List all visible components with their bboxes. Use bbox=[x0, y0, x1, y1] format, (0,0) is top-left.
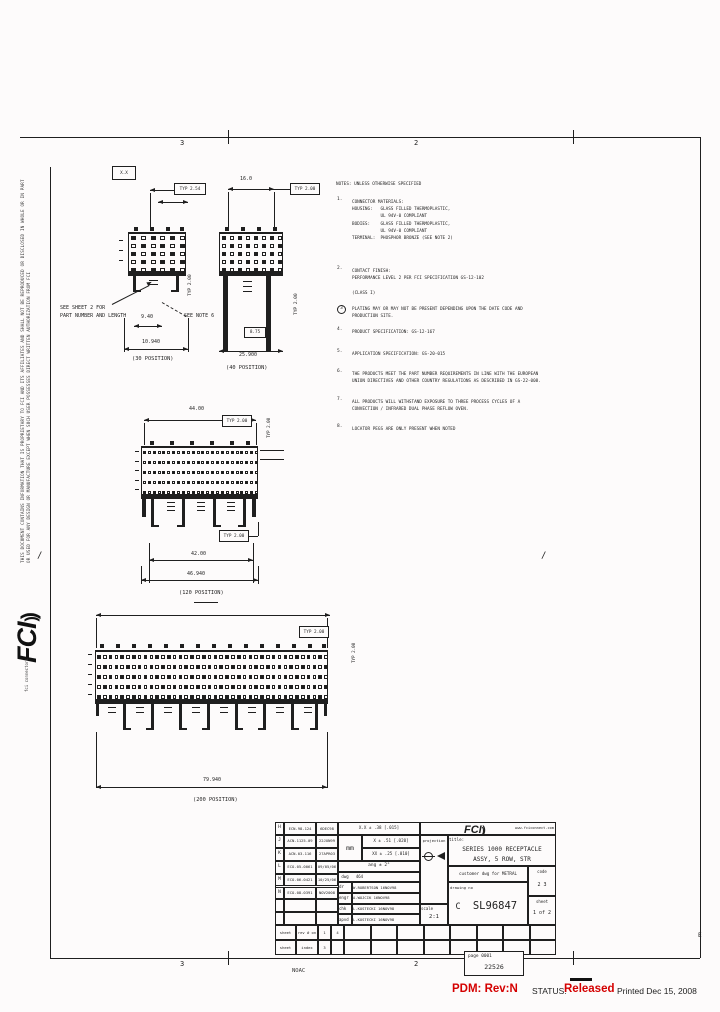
rev-letter: M bbox=[275, 874, 284, 887]
pin-contact bbox=[260, 675, 264, 679]
pin-contact bbox=[289, 655, 293, 659]
pin-contact bbox=[201, 461, 204, 464]
pin-contact bbox=[278, 695, 282, 699]
pin-contact bbox=[216, 481, 219, 484]
title-block-cell: X.X ± .38 [.015] bbox=[338, 822, 420, 835]
sheet-strip-cell bbox=[371, 925, 398, 940]
el-dash bbox=[88, 654, 92, 655]
el-leg bbox=[315, 704, 318, 730]
pin-contact bbox=[120, 665, 124, 669]
rev-date: 22JUN99 bbox=[316, 835, 338, 848]
pin-contact bbox=[120, 685, 124, 689]
zone-label: 3 bbox=[180, 140, 184, 147]
sheet-strip-cell: index bbox=[296, 940, 318, 955]
el-hl bbox=[124, 349, 188, 350]
pin-contact bbox=[158, 471, 161, 474]
pin-contact bbox=[151, 252, 156, 257]
leg-foot bbox=[310, 728, 318, 730]
pin-contact bbox=[201, 491, 204, 494]
pin-contact bbox=[289, 675, 293, 679]
el-rect bbox=[219, 272, 283, 276]
pin-contact bbox=[313, 695, 317, 699]
pin-contact bbox=[172, 491, 175, 494]
rev-letter bbox=[275, 899, 284, 912]
el-vl bbox=[144, 423, 145, 445]
pin-contact bbox=[177, 491, 180, 494]
pin-contact bbox=[208, 685, 212, 689]
pin-contact bbox=[266, 675, 270, 679]
pin-contact bbox=[103, 675, 107, 679]
pin-contact bbox=[260, 665, 264, 669]
leg-foot bbox=[202, 728, 210, 730]
rev-letter: J bbox=[275, 835, 284, 848]
pin-contact bbox=[313, 655, 317, 659]
pin-contact bbox=[295, 695, 299, 699]
el-stud bbox=[150, 227, 154, 231]
title-block-cell: title: bbox=[449, 836, 471, 845]
pin-contact bbox=[115, 655, 119, 659]
pin-contact bbox=[161, 685, 165, 689]
pin-contact bbox=[240, 471, 243, 474]
pin-contact bbox=[192, 491, 195, 494]
title-block-cell: mm bbox=[338, 835, 362, 861]
pin-contact bbox=[144, 665, 148, 669]
el-stud bbox=[260, 644, 264, 648]
pin-contact bbox=[226, 461, 229, 464]
pin-contact bbox=[131, 252, 136, 257]
pin-contact bbox=[197, 481, 200, 484]
sheet-strip-cell bbox=[424, 940, 451, 955]
pin-contact bbox=[187, 481, 190, 484]
pin-contact bbox=[160, 252, 165, 257]
pin-contact bbox=[238, 252, 243, 257]
pin-contact bbox=[144, 685, 148, 689]
pin-contact bbox=[131, 260, 136, 265]
pin-contact bbox=[120, 655, 124, 659]
pin-contact bbox=[231, 665, 235, 669]
pin-contact bbox=[144, 695, 148, 699]
pin-contact bbox=[243, 665, 247, 669]
pin-contact bbox=[272, 685, 276, 689]
rev-letter: K bbox=[275, 848, 284, 861]
pin-contact bbox=[324, 675, 328, 679]
zone-mark: / bbox=[37, 552, 42, 561]
leg-foot bbox=[123, 728, 131, 730]
pin-contact bbox=[182, 481, 185, 484]
title-block-cell: engr bbox=[338, 893, 352, 904]
el-leg bbox=[291, 704, 294, 730]
el-hl bbox=[194, 602, 218, 603]
frame-right bbox=[700, 137, 701, 958]
el-leg bbox=[182, 499, 185, 527]
pin-contact bbox=[211, 461, 214, 464]
pin-contact bbox=[192, 481, 195, 484]
title-block-cell: 2:1 bbox=[420, 912, 448, 923]
pin-contact bbox=[231, 491, 234, 494]
pin-contact bbox=[132, 695, 136, 699]
pin-contact bbox=[307, 665, 311, 669]
pin-contact bbox=[211, 491, 214, 494]
zone-tick bbox=[228, 951, 229, 965]
rev-ecn bbox=[284, 912, 316, 925]
title-block-cell: SERIES 1000 RECEPTACLE bbox=[448, 845, 556, 855]
pin-contact bbox=[255, 471, 258, 474]
pin-contact bbox=[254, 665, 258, 669]
el-dash bbox=[108, 707, 116, 708]
title-block-cell: projection bbox=[420, 836, 448, 845]
pin-contact bbox=[180, 252, 185, 257]
el-vl bbox=[274, 192, 275, 230]
el-hl bbox=[260, 459, 284, 460]
pin-contact bbox=[222, 252, 227, 257]
pin-contact bbox=[270, 252, 275, 257]
pin-contact bbox=[197, 471, 200, 474]
pin-contact bbox=[216, 451, 219, 454]
pin-contact bbox=[225, 685, 229, 689]
pin-contact bbox=[97, 675, 101, 679]
pin-contact bbox=[158, 481, 161, 484]
zone-mark: E bbox=[698, 933, 702, 939]
note-text: THE PRODUCTS MEET THE PART NUMBER REQUIR… bbox=[352, 371, 541, 385]
el-stud bbox=[164, 644, 168, 648]
pin-contact bbox=[225, 675, 229, 679]
pin-contact bbox=[179, 685, 183, 689]
pin-contact bbox=[138, 675, 142, 679]
view-a-body bbox=[128, 232, 186, 272]
title-block-cell: code bbox=[528, 868, 556, 876]
pin-contact bbox=[161, 655, 165, 659]
pin-contact bbox=[236, 491, 239, 494]
pin-contact bbox=[184, 675, 188, 679]
pin-contact bbox=[243, 685, 247, 689]
copyright-line-1: THIS DOCUMENT CONTAINS INFORMATION THAT … bbox=[20, 188, 26, 563]
pin-contact bbox=[255, 481, 258, 484]
el-leg bbox=[207, 704, 210, 730]
pin-contact bbox=[324, 685, 328, 689]
pin-contact bbox=[202, 675, 206, 679]
el-dash bbox=[119, 250, 123, 251]
rev-letter: N bbox=[275, 887, 284, 900]
sheet-strip-cell bbox=[344, 925, 371, 940]
pin-contact bbox=[202, 655, 206, 659]
pin-contact bbox=[226, 451, 229, 454]
el-dash bbox=[227, 506, 235, 507]
el-leg bbox=[179, 704, 182, 730]
sheet-strip-cell bbox=[397, 925, 424, 940]
pin-contact bbox=[182, 461, 185, 464]
el-dash bbox=[220, 712, 228, 713]
el-dash bbox=[197, 510, 205, 511]
el-stud bbox=[230, 441, 234, 445]
pin-contact bbox=[179, 665, 183, 669]
title-block-cell: sheet bbox=[528, 898, 556, 906]
pin-contact bbox=[103, 695, 107, 699]
el-dash bbox=[136, 707, 144, 708]
sheet-strip-cell: sheet bbox=[275, 925, 296, 940]
el-leg bbox=[133, 276, 136, 292]
pin-contact bbox=[141, 260, 146, 265]
el-dash bbox=[220, 707, 228, 708]
pin-contact bbox=[262, 252, 267, 257]
pin-contact bbox=[208, 655, 212, 659]
pin-contact bbox=[167, 665, 171, 669]
pin-contact bbox=[158, 491, 161, 494]
pin-contact bbox=[266, 685, 270, 689]
title-block-cell: SL96847 bbox=[464, 897, 526, 915]
zone-tick bbox=[228, 130, 229, 144]
pin-contact bbox=[201, 451, 204, 454]
sheet-strip-cell bbox=[530, 940, 557, 955]
el-dash bbox=[243, 291, 252, 292]
pin-contact bbox=[211, 481, 214, 484]
el-stud bbox=[132, 644, 136, 648]
pin-contact bbox=[167, 451, 170, 454]
pin-contact bbox=[138, 695, 142, 699]
el-box: TYP 2.54 bbox=[174, 183, 206, 195]
el-dash bbox=[248, 712, 256, 713]
pin-contact bbox=[167, 491, 170, 494]
pin-contact bbox=[179, 675, 183, 679]
pin-contact bbox=[208, 675, 212, 679]
el-box: 8.75 bbox=[244, 327, 266, 338]
el-dash bbox=[227, 510, 235, 511]
pin-contact bbox=[177, 461, 180, 464]
title-block-cell: L.KOSTECKI 16NOV98 bbox=[352, 914, 420, 925]
pin-contact bbox=[214, 675, 218, 679]
el-hl bbox=[96, 615, 330, 616]
el-txt: TYP 2.00 bbox=[295, 293, 300, 315]
el-dash bbox=[167, 506, 175, 507]
pin-contact bbox=[272, 655, 276, 659]
pin-contact bbox=[172, 461, 175, 464]
el-dash bbox=[88, 674, 92, 675]
leg-foot bbox=[177, 525, 185, 527]
pin-contact bbox=[295, 665, 299, 669]
pin-contact bbox=[158, 451, 161, 454]
pin-contact bbox=[160, 236, 165, 241]
pin-contact bbox=[211, 451, 214, 454]
pin-contact bbox=[266, 665, 270, 669]
pin-contact bbox=[249, 655, 253, 659]
pin-contact bbox=[254, 675, 258, 679]
title-block-cell: chk bbox=[338, 904, 352, 915]
pin-contact bbox=[313, 675, 317, 679]
title-block-cell: dwg 464 bbox=[338, 872, 420, 882]
pin-contact bbox=[236, 451, 239, 454]
el-txt: 44.00 bbox=[189, 407, 204, 412]
pin-contact bbox=[162, 491, 165, 494]
leg-foot bbox=[291, 728, 299, 730]
rev-ecn bbox=[284, 899, 316, 912]
pin-contact bbox=[187, 461, 190, 464]
pdm-printed-date: Printed Dec 15, 2008 bbox=[617, 986, 697, 996]
el-dash bbox=[164, 707, 172, 708]
pin-contact bbox=[225, 655, 229, 659]
el-dash bbox=[167, 502, 175, 503]
pin-contact bbox=[289, 665, 293, 669]
pin-contact bbox=[150, 695, 154, 699]
fci-tagline: fci connectors bbox=[24, 692, 32, 693]
pin-contact bbox=[307, 675, 311, 679]
pin-contact bbox=[126, 685, 130, 689]
sheet-strip-cell bbox=[424, 925, 451, 940]
pin-contact bbox=[143, 471, 146, 474]
pin-contact bbox=[238, 260, 243, 265]
sheet-strip-cell bbox=[397, 940, 424, 955]
pin-contact bbox=[151, 236, 156, 241]
el-txt: 10.940 bbox=[142, 340, 160, 345]
pin-contact bbox=[143, 481, 146, 484]
pin-contact bbox=[272, 675, 276, 679]
pin-contact bbox=[231, 461, 234, 464]
pin-contact bbox=[226, 471, 229, 474]
pin-contact bbox=[167, 461, 170, 464]
pin-contact bbox=[245, 481, 248, 484]
pin-contact bbox=[266, 655, 270, 659]
note-number: 1. bbox=[337, 198, 342, 203]
pin-contact bbox=[182, 491, 185, 494]
note-number: 2. bbox=[337, 267, 342, 272]
el-hl bbox=[274, 189, 290, 190]
pin-contact bbox=[249, 675, 253, 679]
pin-contact bbox=[318, 655, 322, 659]
el-stud bbox=[228, 644, 232, 648]
pin-contact bbox=[284, 655, 288, 659]
pin-contact bbox=[318, 665, 322, 669]
el-vl bbox=[150, 193, 151, 230]
el-txt: TYP 2.00 bbox=[352, 643, 356, 663]
pin-contact bbox=[211, 471, 214, 474]
pin-contact bbox=[278, 236, 283, 241]
zone-tick bbox=[573, 951, 574, 965]
el-dash bbox=[192, 707, 200, 708]
el-txt: TYP 2.00 bbox=[267, 418, 271, 438]
el-box: TYP 2.00 bbox=[299, 626, 329, 638]
pin-contact bbox=[126, 655, 130, 659]
pin-contact bbox=[115, 675, 119, 679]
pin-contact bbox=[132, 655, 136, 659]
pin-contact bbox=[103, 665, 107, 669]
pin-contact bbox=[231, 451, 234, 454]
pin-contact bbox=[246, 252, 251, 257]
el-dash bbox=[248, 707, 256, 708]
pin-contact bbox=[155, 675, 159, 679]
pin-contact bbox=[284, 695, 288, 699]
pin-contact bbox=[216, 471, 219, 474]
el-stud bbox=[273, 227, 277, 231]
pin-contact bbox=[219, 675, 223, 679]
pin-contact bbox=[250, 461, 253, 464]
el-box: TYP 2.00 bbox=[219, 530, 249, 542]
pin-contact bbox=[180, 236, 185, 241]
el-rect bbox=[266, 276, 271, 352]
pin-contact bbox=[144, 675, 148, 679]
pin-contact bbox=[318, 695, 322, 699]
pin-contact bbox=[246, 236, 251, 241]
title-block-cell bbox=[420, 835, 448, 904]
pin-contact bbox=[237, 665, 241, 669]
title-block-cell: W.ROBERTSON 16NOV98 bbox=[352, 882, 420, 893]
pin-contact bbox=[184, 665, 188, 669]
pin-contact bbox=[148, 471, 151, 474]
sheet-strip-cell bbox=[344, 940, 371, 955]
pin-contact bbox=[97, 655, 101, 659]
pin-contact bbox=[143, 451, 146, 454]
note-text: CONNECTOR MATERIALS: HOUSING: GLASS FILL… bbox=[352, 199, 453, 242]
pin-contact bbox=[313, 665, 317, 669]
pin-contact bbox=[307, 685, 311, 689]
pin-contact bbox=[250, 471, 253, 474]
el-stud bbox=[134, 227, 138, 231]
sheet-strip-cell bbox=[530, 925, 557, 940]
pin-contact bbox=[132, 675, 136, 679]
pin-contact bbox=[254, 655, 258, 659]
el-leg bbox=[151, 704, 154, 730]
sheet-strip-cell bbox=[450, 925, 477, 940]
pin-contact bbox=[318, 685, 322, 689]
el-hl bbox=[249, 536, 258, 537]
pin-contact bbox=[236, 481, 239, 484]
pin-contact bbox=[266, 695, 270, 699]
pin-contact bbox=[160, 244, 165, 249]
pin-contact bbox=[301, 665, 305, 669]
el-dash bbox=[135, 489, 139, 490]
pin-contact bbox=[167, 695, 171, 699]
note-number: 6. bbox=[337, 370, 342, 375]
note-text: APPLICATION SPECIFICATION: GS-20-015 bbox=[352, 351, 445, 358]
pin-contact bbox=[219, 695, 223, 699]
pin-contact bbox=[214, 665, 218, 669]
pin-contact bbox=[196, 675, 200, 679]
el-stud bbox=[196, 644, 200, 648]
pin-contact bbox=[131, 236, 136, 241]
note-text: NOTES: UNLESS OTHERWISE SPECIFIED bbox=[336, 181, 421, 188]
sheet-strip-cell: rev # on bbox=[296, 925, 318, 940]
copyright-notice: THIS DOCUMENT CONTAINS INFORMATION THAT … bbox=[20, 563, 34, 564]
pin-contact bbox=[115, 665, 119, 669]
el-hl bbox=[149, 560, 253, 561]
note-number-circle: 3 bbox=[337, 305, 346, 314]
title-block-cell: 2 3 bbox=[528, 880, 556, 890]
pin-contact bbox=[173, 655, 177, 659]
pin-contact bbox=[197, 461, 200, 464]
pin-contact bbox=[236, 471, 239, 474]
pin-contact bbox=[120, 695, 124, 699]
pin-contact bbox=[190, 695, 194, 699]
stamp-doc-id: 22526 bbox=[465, 963, 523, 971]
el-hl bbox=[141, 580, 258, 581]
pin-contact bbox=[182, 451, 185, 454]
pin-contact bbox=[190, 675, 194, 679]
pin-contact bbox=[324, 695, 328, 699]
pin-contact bbox=[226, 481, 229, 484]
pin-contact bbox=[148, 461, 151, 464]
pin-contact bbox=[270, 236, 275, 241]
pin-contact bbox=[301, 655, 305, 659]
note-text: PRODUCT SPECIFICATION: GS-12-167 bbox=[352, 329, 435, 336]
el-dash bbox=[119, 240, 123, 241]
pin-contact bbox=[187, 471, 190, 474]
title-block-cell: apvd bbox=[338, 914, 352, 925]
el-stud bbox=[170, 441, 174, 445]
el-leg bbox=[235, 704, 238, 730]
pin-contact bbox=[208, 695, 212, 699]
pin-contact bbox=[179, 655, 183, 659]
sheet-strip-cell bbox=[331, 940, 344, 955]
pin-contact bbox=[167, 471, 170, 474]
pin-contact bbox=[278, 675, 282, 679]
pin-contact bbox=[138, 665, 142, 669]
